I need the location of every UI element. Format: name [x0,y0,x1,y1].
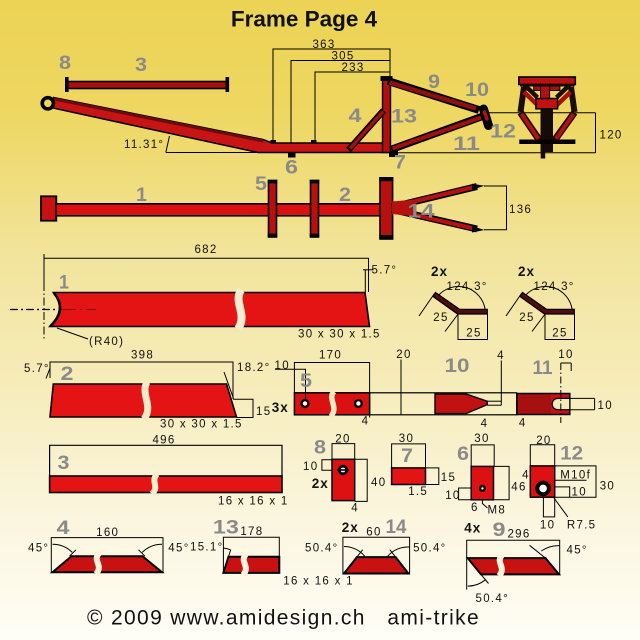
svg-text:30: 30 [600,481,615,493]
svg-text:46: 46 [511,482,526,494]
svg-text:10: 10 [558,349,573,361]
svg-text:2x: 2x [518,264,535,279]
svg-text:(R40): (R40) [89,336,124,348]
svg-text:682: 682 [194,244,217,256]
svg-text:10: 10 [465,80,489,101]
svg-text:4x: 4x [464,521,481,536]
svg-text:Frame Page 4: Frame Page 4 [231,7,378,32]
svg-text:6: 6 [471,502,479,514]
svg-text:6: 6 [457,444,469,465]
svg-text:11: 11 [453,134,481,155]
svg-text:10: 10 [598,400,613,412]
svg-text:4: 4 [481,418,489,430]
svg-text:11.31°: 11.31° [124,139,164,151]
svg-text:45°: 45° [567,545,588,557]
svg-text:14: 14 [408,202,436,223]
svg-text:10: 10 [275,360,290,372]
svg-text:25: 25 [466,328,481,340]
svg-text:9: 9 [428,72,440,93]
svg-text:9: 9 [493,520,506,541]
svg-text:30: 30 [474,433,489,445]
svg-text:3x: 3x [272,400,289,415]
svg-text:© 2009 www.amidesign.ch ami-: © 2009 www.amidesign.ch ami-trike [87,607,480,630]
svg-text:30: 30 [399,433,414,445]
svg-text:10: 10 [445,490,460,502]
svg-text:1: 1 [136,185,147,206]
svg-text:2x: 2x [312,476,329,491]
svg-text:1: 1 [59,273,69,294]
svg-text:120: 120 [600,130,623,142]
svg-text:10: 10 [445,356,470,377]
svg-text:30 x 30 x 1.5: 30 x 30 x 1.5 [298,329,381,341]
svg-text:398: 398 [131,350,154,362]
svg-text:10: 10 [540,520,555,532]
svg-text:496: 496 [152,435,175,447]
svg-text:50.4°: 50.4° [476,593,509,605]
svg-text:4: 4 [57,518,71,539]
svg-text:160: 160 [96,527,119,539]
svg-text:5: 5 [255,174,267,195]
svg-text:15: 15 [256,406,271,418]
svg-text:2: 2 [339,185,351,206]
svg-text:363: 363 [312,39,335,51]
svg-text:30 x 30 x 1.5: 30 x 30 x 1.5 [160,419,243,431]
svg-text:M10f: M10f [560,470,591,482]
svg-text:3: 3 [58,453,70,474]
svg-text:13: 13 [213,518,239,539]
svg-text:5.7°: 5.7° [372,265,398,277]
svg-text:12: 12 [490,122,516,143]
svg-text:3: 3 [135,55,147,76]
svg-text:50.4°: 50.4° [305,543,338,555]
svg-text:60: 60 [366,527,381,539]
svg-text:11: 11 [533,358,553,379]
svg-text:4: 4 [351,503,359,515]
svg-text:20: 20 [335,434,350,446]
svg-text:10: 10 [303,461,318,473]
svg-text:136: 136 [509,204,532,216]
svg-text:25: 25 [552,328,567,340]
svg-text:12: 12 [560,444,583,465]
svg-text:7: 7 [401,446,413,467]
svg-text:25: 25 [519,312,534,324]
svg-text:4: 4 [349,106,363,127]
svg-text:25: 25 [433,312,448,324]
svg-text:8: 8 [59,53,71,74]
svg-text:M8: M8 [488,505,507,517]
svg-text:20: 20 [396,349,411,361]
svg-text:2x: 2x [342,520,359,535]
svg-text:2x: 2x [431,264,448,279]
svg-text:13: 13 [391,107,417,128]
svg-text:4: 4 [522,470,530,482]
svg-text:4: 4 [362,416,370,428]
svg-text:16 x 16 x 1: 16 x 16 x 1 [283,576,354,588]
svg-text:4: 4 [497,350,505,362]
svg-text:45°: 45° [168,543,189,555]
svg-text:40: 40 [371,477,386,489]
svg-text:45°: 45° [28,543,49,555]
svg-text:10: 10 [572,487,587,499]
svg-text:170: 170 [319,350,342,362]
svg-text:5: 5 [300,371,312,392]
svg-text:305: 305 [331,51,354,63]
svg-text:296: 296 [507,529,530,541]
svg-text:14: 14 [386,517,407,538]
svg-text:6: 6 [285,158,298,179]
svg-text:20: 20 [536,435,551,447]
svg-text:16 x 16 x 1: 16 x 16 x 1 [218,496,289,508]
svg-text:4: 4 [519,418,527,430]
svg-text:8: 8 [314,438,326,459]
svg-text:15.1°: 15.1° [190,542,223,554]
svg-text:R7.5: R7.5 [567,520,597,532]
svg-text:1.5: 1.5 [408,486,428,498]
svg-text:15: 15 [441,472,456,484]
svg-text:7: 7 [394,153,406,174]
svg-text:233: 233 [341,62,364,74]
svg-text:178: 178 [240,526,263,538]
svg-text:18.2°: 18.2° [237,362,270,374]
svg-text:2: 2 [61,364,74,385]
svg-text:5.7°: 5.7° [24,363,50,375]
svg-text:50.4°: 50.4° [413,543,446,555]
